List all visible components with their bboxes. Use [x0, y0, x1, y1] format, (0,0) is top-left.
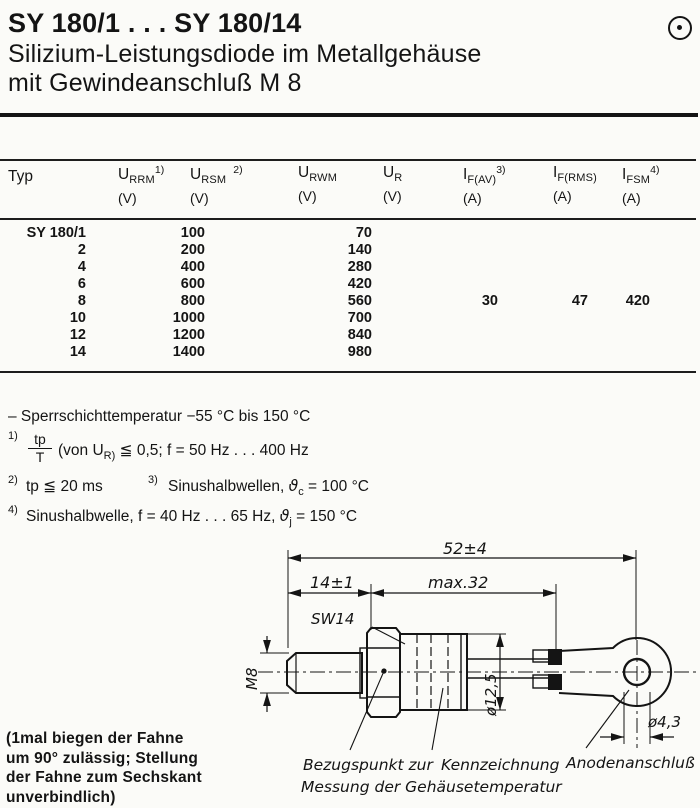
- col-header-label: U: [118, 166, 129, 183]
- col-header-unit: (V): [383, 188, 402, 204]
- footnote-1-fraction: tp T: [28, 432, 52, 465]
- cell-typ: 14: [8, 344, 86, 360]
- table-row: 8 800 560 30 47 420: [0, 293, 700, 310]
- threaded-stud: [287, 653, 362, 693]
- col-header-unit: (A): [622, 190, 659, 206]
- cell-urrm-ursm: 600: [125, 276, 205, 292]
- col-header-unit: (V): [118, 190, 164, 206]
- table-row: 10 1000 700: [0, 310, 700, 327]
- col-header-label: U: [298, 164, 309, 181]
- cell-urwm: 420: [295, 276, 372, 292]
- theta-symbol: ϑ: [289, 477, 299, 495]
- caption-marking: Kennzeichnung: [441, 756, 560, 774]
- fraction-denominator: T: [28, 449, 52, 465]
- cell-urwm: 700: [295, 310, 372, 326]
- footnote-ref: 2): [233, 164, 242, 176]
- cell-urwm: 560: [295, 293, 372, 309]
- col-header-ursm: URSM2) (V): [190, 164, 243, 206]
- col-header-label: U: [190, 166, 201, 183]
- footnote-text: = 100 °C: [304, 478, 369, 495]
- note-temperature-range: – Sperrschichttemperatur −55 °C bis 150 …: [8, 408, 310, 426]
- col-header-typ: Typ: [8, 168, 33, 186]
- dim-body-diameter: ø12,5: [482, 673, 500, 717]
- dim-hole-diameter: ø4,3: [647, 713, 681, 731]
- cell-typ: 6: [8, 276, 86, 292]
- bending-note-line: um 90° zulässig; Stellung: [6, 749, 202, 769]
- col-header-label: U: [383, 164, 394, 181]
- dim-body-length: max.32: [428, 573, 488, 592]
- footnote-text: ≦ 0,5; f = 50 Hz . . . 400 Hz: [115, 442, 308, 459]
- col-header-subscript: R: [394, 172, 402, 184]
- footnote-ref: 4): [650, 164, 659, 176]
- col-header-ifsm: IFSM4) (A): [622, 164, 659, 206]
- dim-stud-length: 14±1: [310, 573, 354, 592]
- cell-urwm: 70: [295, 225, 372, 241]
- footnote-ref: 3): [496, 164, 505, 176]
- cell-ifav-shared: 30: [458, 293, 498, 309]
- bending-note-line: (1mal biegen der Fahne: [6, 729, 202, 749]
- col-header-subscript: FSM: [626, 174, 650, 186]
- cell-urwm: 140: [295, 242, 372, 258]
- cell-urrm-ursm: 100: [125, 225, 205, 241]
- footnote-text: Sinushalbwelle, f = 40 Hz . . . 65 Hz,: [26, 508, 280, 525]
- subtitle-line-1: Silizium-Leistungsdiode im Metallgehäuse: [8, 40, 482, 69]
- caption-reference-point-line2: Messung der Gehäusetemperatur: [301, 778, 563, 796]
- caption-anode-connection: Anodenanschluß: [565, 754, 695, 772]
- page-subtitle: Silizium-Leistungsdiode im Metallgehäuse…: [8, 40, 482, 98]
- table-row: 14 1400 980: [0, 344, 700, 361]
- col-header-subscript: RWM: [309, 172, 337, 184]
- footnote-4-text: Sinushalbwelle, f = 40 Hz . . . 65 Hz, ϑ…: [26, 507, 357, 528]
- table-row: 6 600 420: [0, 276, 700, 293]
- bending-note-line: unverbindlich): [6, 788, 202, 808]
- col-header-ifrms: IF(RMS) (A): [553, 164, 597, 204]
- caption-reference-point-line1: Bezugspunkt zur: [303, 756, 434, 774]
- col-header-unit: (V): [190, 190, 243, 206]
- fraction-numerator: tp: [28, 432, 52, 449]
- col-header-unit: (A): [463, 190, 506, 206]
- cell-typ: 2: [8, 242, 86, 258]
- page-title: SY 180/1 . . . SY 180/14: [8, 8, 302, 39]
- dim-thread: M8: [243, 668, 261, 691]
- footnote-2-marker: 2): [8, 474, 18, 486]
- dim-overall-length: 52±4: [443, 539, 487, 558]
- footnote-subscript: R): [104, 450, 116, 462]
- footnote-1-text: (von UR) ≦ 0,5; f = 50 Hz . . . 400 Hz: [58, 441, 309, 462]
- cell-urrm-ursm: 1400: [125, 344, 205, 360]
- cell-ifsm-shared: 420: [604, 293, 650, 309]
- table-bottom-rule: [0, 371, 696, 373]
- table-header-rule: [0, 218, 696, 220]
- col-header-subscript: F(AV): [467, 174, 496, 186]
- footnote-2-text: tp ≦ 20 ms: [26, 477, 103, 496]
- subtitle-line-2: mit Gewindeanschluß M 8: [8, 69, 482, 98]
- dim-hex-width: SW14: [311, 610, 354, 628]
- cell-typ: 12: [8, 327, 86, 343]
- table-row: 4 400 280: [0, 259, 700, 276]
- title-divider: [0, 113, 698, 117]
- col-header-unit: (A): [553, 188, 597, 204]
- footnote-ref: 1): [155, 164, 164, 176]
- footnote-4-marker: 4): [8, 504, 18, 516]
- cell-urwm: 840: [295, 327, 372, 343]
- footnote-1-marker: 1): [8, 430, 18, 442]
- circled-dot-icon: [668, 16, 692, 40]
- bending-note-line: der Fahne zum Sechskant: [6, 768, 202, 788]
- cell-typ: SY 180/1: [8, 225, 86, 241]
- col-header-ifav: IF(AV)3) (A): [463, 164, 506, 206]
- col-header-subscript: RRM: [129, 174, 155, 186]
- col-header-ur: UR (V): [383, 164, 402, 204]
- table-row: SY 180/1 100 70: [0, 225, 700, 242]
- cell-typ: 4: [8, 259, 86, 275]
- bending-note: (1mal biegen der Fahne um 90° zulässig; …: [6, 729, 202, 807]
- table-row: 12 1200 840: [0, 327, 700, 344]
- cell-urwm: 280: [295, 259, 372, 275]
- cell-urwm: 980: [295, 344, 372, 360]
- col-header-unit: (V): [298, 188, 337, 204]
- footnote-text: = 150 °C: [292, 508, 357, 525]
- cell-urrm-ursm: 400: [125, 259, 205, 275]
- cell-typ: 10: [8, 310, 86, 326]
- footnote-text: Sinushalbwellen,: [168, 478, 289, 495]
- cell-urrm-ursm: 200: [125, 242, 205, 258]
- col-header-urrm: URRM1) (V): [118, 164, 164, 206]
- footnote-3-marker: 3): [148, 474, 158, 486]
- table-row: 2 200 140: [0, 242, 700, 259]
- col-header-urwm: URWM (V): [298, 164, 337, 204]
- cell-typ: 8: [8, 293, 86, 309]
- col-header-subscript: RSM: [201, 174, 226, 186]
- diode-outline-drawing: 52±4 14±1 max.32 SW14 M8 ø12,5 ø4,3 Bezu…: [230, 538, 700, 808]
- cell-ifrms-shared: 47: [552, 293, 588, 309]
- cell-urrm-ursm: 1200: [125, 327, 205, 343]
- col-header-subscript: F(RMS): [557, 172, 597, 184]
- cell-urrm-ursm: 1000: [125, 310, 205, 326]
- theta-symbol: ϑ: [280, 507, 290, 525]
- footnote-text: (von U: [58, 442, 104, 459]
- footnote-3-text: Sinushalbwellen, ϑc = 100 °C: [168, 477, 369, 498]
- table-top-rule: [0, 159, 696, 161]
- col-header-label: Typ: [8, 168, 33, 185]
- cell-urrm-ursm: 800: [125, 293, 205, 309]
